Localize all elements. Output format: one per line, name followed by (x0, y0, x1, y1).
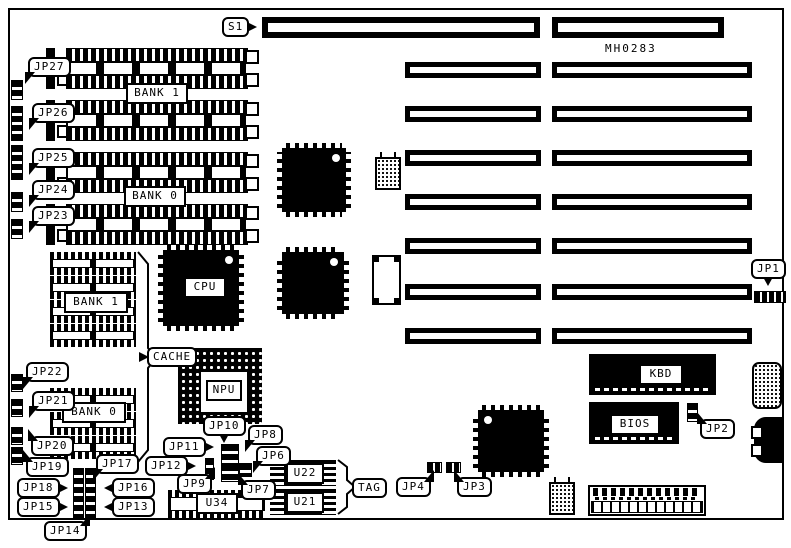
speaker-footprint (752, 362, 782, 409)
crystal (375, 157, 401, 190)
isa-slot-segment (552, 328, 752, 344)
isa-slot-segment (262, 17, 540, 38)
kbd-chip: KBD (589, 354, 716, 395)
callout-jp17: JP17 (96, 454, 139, 474)
oscillator-socket (372, 255, 401, 305)
callout-jp19: JP19 (26, 457, 69, 477)
jumper-block (221, 464, 239, 482)
part-number: MH0283 (605, 42, 657, 55)
dram-bank1-dip: BANK 1 (50, 252, 136, 348)
callout-jp18: JP18 (17, 478, 60, 498)
callout-jp22: JP22 (26, 362, 69, 382)
power-connector (588, 485, 706, 516)
isa-slot-segment (552, 238, 752, 254)
label-u22: U22 (286, 463, 324, 484)
callout-jp1: JP1 (751, 259, 786, 279)
label-bank0-simm: BANK 0 (124, 186, 186, 207)
crystal (549, 482, 575, 515)
jumper-jp24 (11, 192, 23, 212)
callout-jp9: JP9 (177, 474, 212, 494)
isa-slot-segment (552, 106, 752, 122)
isa-slot-segment (552, 62, 752, 78)
isa-slot-segment (405, 150, 541, 166)
cpu-chip: CPU (163, 250, 239, 326)
label-bios: BIOS (610, 414, 660, 435)
callout-jp4: JP4 (396, 477, 431, 497)
jumper-jp23 (11, 219, 23, 239)
callout-jp3: JP3 (457, 477, 492, 497)
isa-slot-segment (552, 17, 724, 38)
jumper-jp22 (11, 374, 23, 392)
label-u34: U34 (196, 493, 238, 514)
label-cpu: CPU (184, 277, 226, 298)
label-bank1-dip: BANK 1 (64, 292, 128, 313)
callout-jp2: JP2 (700, 419, 735, 439)
callout-jp23: JP23 (32, 206, 75, 226)
motherboard-diagram: MH0283 S1 JP1 BANK 1 BANK 0 JP27 JP26 JP… (0, 0, 791, 548)
callout-jp8: JP8 (248, 425, 283, 445)
callout-jp12: JP12 (145, 456, 188, 476)
isa-slot-segment (405, 238, 541, 254)
callout-jp6: JP6 (256, 446, 291, 466)
callout-jp20: JP20 (31, 436, 74, 456)
isa-slot-segment (405, 62, 541, 78)
qfp-chip (282, 252, 344, 314)
isa-slot-segment (405, 106, 541, 122)
callout-jp14: JP14 (44, 521, 87, 541)
label-npu: NPU (206, 380, 242, 401)
keyboard-din-connector (754, 417, 784, 463)
callout-s1: S1 (222, 17, 249, 37)
callout-jp13: JP13 (112, 497, 155, 517)
jumper-strip (73, 468, 84, 520)
callout-jp16: JP16 (112, 478, 155, 498)
qfp-chip (282, 148, 346, 212)
jumper-jp25 (11, 145, 23, 180)
callout-jp15: JP15 (17, 497, 60, 517)
isa-slot-segment (405, 194, 541, 210)
bios-chip: BIOS (589, 402, 679, 444)
jumper-jp26 (11, 106, 23, 141)
callout-jp26: JP26 (32, 103, 75, 123)
callout-jp25: JP25 (32, 148, 75, 168)
callout-jp27: JP27 (28, 57, 71, 77)
label-bank1-simm: BANK 1 (126, 83, 188, 104)
jumper-block (221, 444, 239, 464)
jumper-jp21 (11, 399, 23, 417)
callout-cache: CACHE (147, 347, 197, 367)
isa-slot-segment (552, 284, 752, 300)
callout-tag: TAG (352, 478, 387, 498)
qfp-chip (478, 410, 544, 472)
callout-jp24: JP24 (32, 180, 75, 200)
jumper-jp19 (11, 447, 23, 465)
callout-jp21: JP21 (32, 391, 75, 411)
isa-slot-segment (552, 150, 752, 166)
callout-jp7: JP7 (241, 480, 276, 500)
isa-slot-segment (405, 284, 541, 300)
callout-jp11: JP11 (163, 437, 206, 457)
jumper-jp1 (754, 291, 786, 303)
jumper-jp27 (11, 80, 23, 100)
label-u21: U21 (286, 492, 324, 513)
u21-chip: U21 (270, 489, 336, 515)
jumper-jp20 (11, 427, 23, 445)
isa-slot-segment (552, 194, 752, 210)
callout-jp10: JP10 (203, 416, 246, 436)
label-kbd: KBD (639, 364, 683, 385)
isa-slot-segment (405, 328, 541, 344)
